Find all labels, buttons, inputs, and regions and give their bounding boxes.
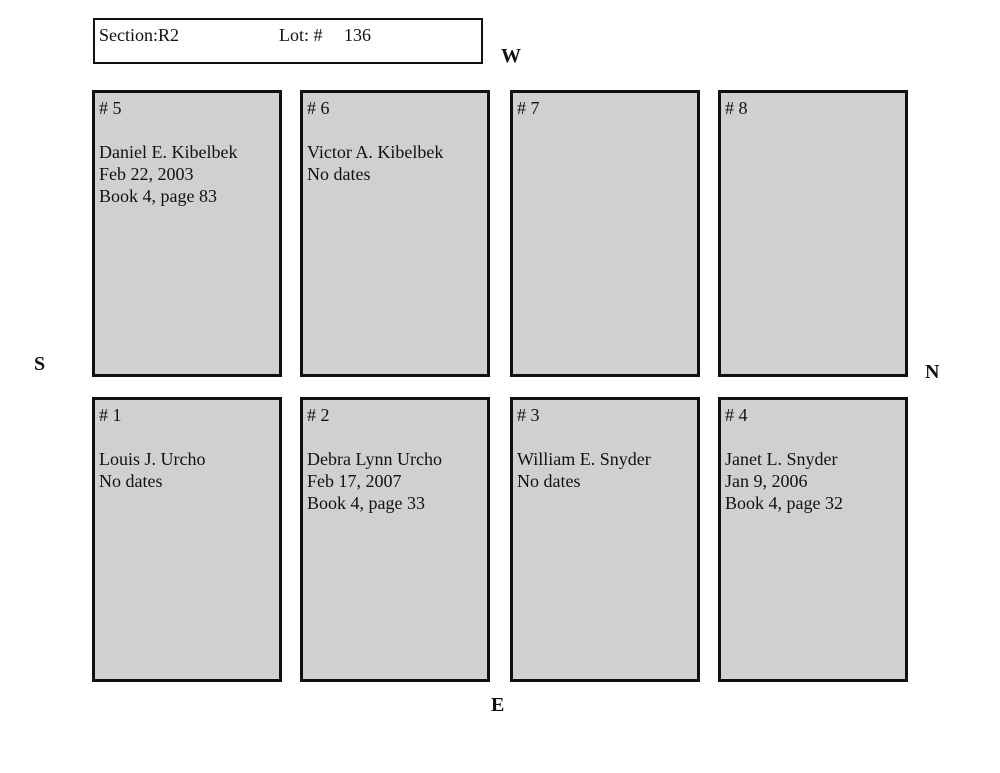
section-lot-header: Section: R2 Lot: # 136	[93, 18, 483, 64]
plot-8: # 8	[718, 90, 908, 377]
lot-label: Lot: #	[279, 25, 323, 46]
plot-3: # 3 William E. Snyder No dates	[510, 397, 700, 682]
section-value: R2	[158, 25, 179, 46]
compass-north-label: N	[925, 361, 939, 383]
plot-number: # 4	[725, 404, 901, 426]
plot-occupant-name: Victor A. Kibelbek	[307, 141, 483, 163]
plot-date: Jan 9, 2006	[725, 470, 901, 492]
plot-date: No dates	[307, 163, 483, 185]
plot-6: # 6 Victor A. Kibelbek No dates	[300, 90, 490, 377]
compass-west-label: W	[501, 45, 521, 67]
plot-occupant-name: Janet L. Snyder	[725, 448, 901, 470]
plot-number: # 8	[725, 97, 901, 119]
plot-date: No dates	[99, 470, 275, 492]
plot-occupant-name: Louis J. Urcho	[99, 448, 275, 470]
plot-number: # 6	[307, 97, 483, 119]
plot-number: # 2	[307, 404, 483, 426]
plot-date: Feb 22, 2003	[99, 163, 275, 185]
plot-1: # 1 Louis J. Urcho No dates	[92, 397, 282, 682]
plot-date: Feb 17, 2007	[307, 470, 483, 492]
plot-occupant-name: Daniel E. Kibelbek	[99, 141, 275, 163]
plot-occupant-name: Debra Lynn Urcho	[307, 448, 483, 470]
plot-book-ref: Book 4, page 33	[307, 492, 483, 514]
plot-7: # 7	[510, 90, 700, 377]
plot-occupant-name: William E. Snyder	[517, 448, 693, 470]
plot-number: # 1	[99, 404, 275, 426]
plot-5: # 5 Daniel E. Kibelbek Feb 22, 2003 Book…	[92, 90, 282, 377]
compass-east-label: E	[491, 694, 504, 716]
plot-4: # 4 Janet L. Snyder Jan 9, 2006 Book 4, …	[718, 397, 908, 682]
plot-book-ref: Book 4, page 83	[99, 185, 275, 207]
plot-number: # 3	[517, 404, 693, 426]
lot-value: 136	[344, 25, 371, 46]
plot-number: # 7	[517, 97, 693, 119]
compass-south-label: S	[34, 353, 45, 375]
plot-2: # 2 Debra Lynn Urcho Feb 17, 2007 Book 4…	[300, 397, 490, 682]
plot-number: # 5	[99, 97, 275, 119]
plot-book-ref: Book 4, page 32	[725, 492, 901, 514]
plot-date: No dates	[517, 470, 693, 492]
section-label: Section:	[99, 25, 158, 46]
